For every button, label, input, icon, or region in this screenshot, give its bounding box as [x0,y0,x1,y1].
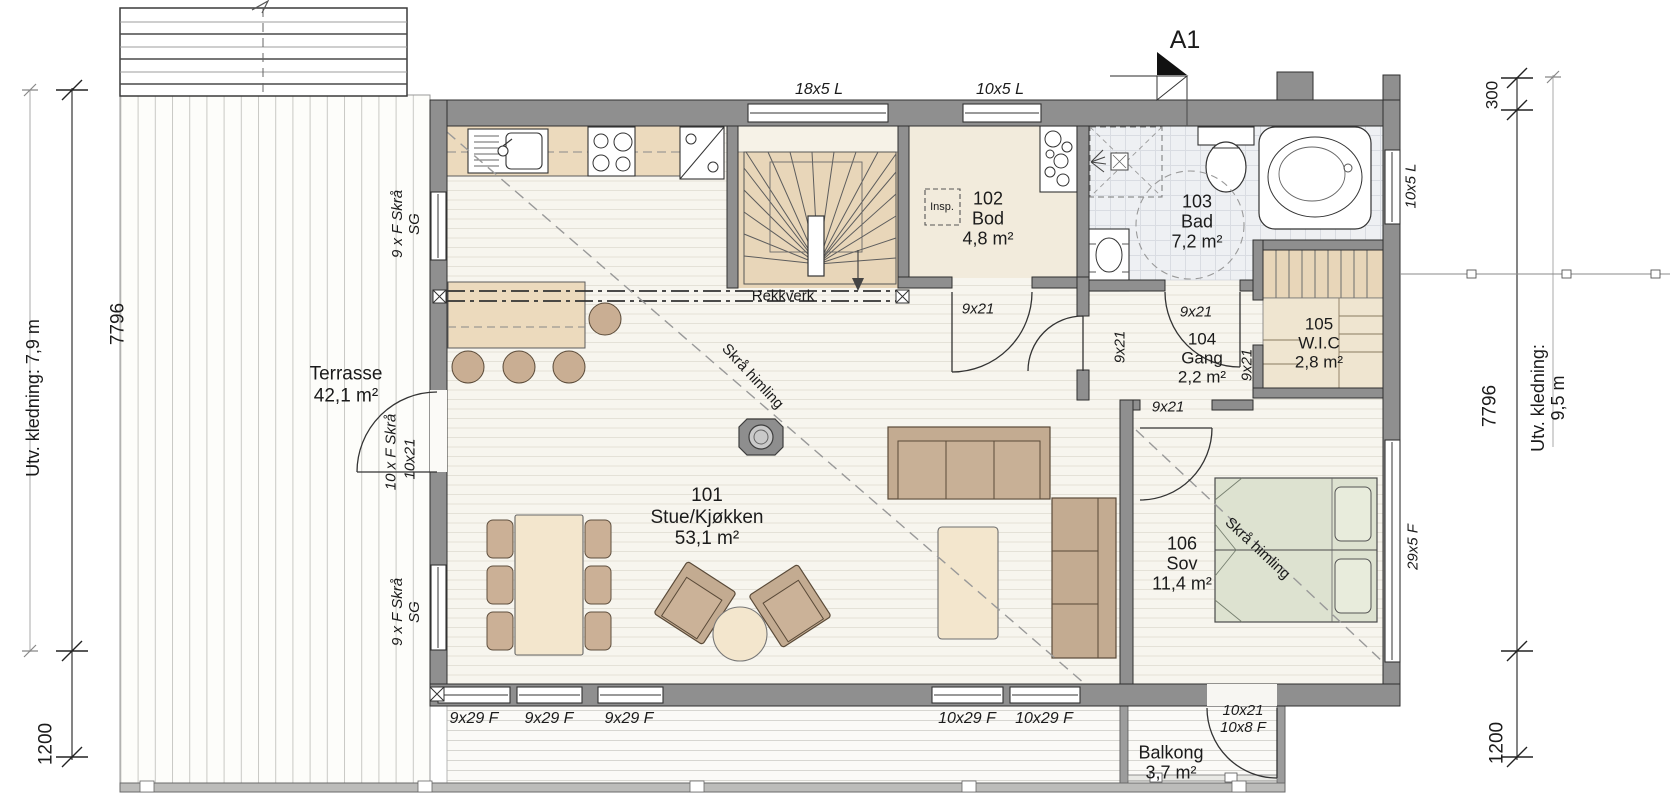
window-label-18x5: 18x5 L [795,81,843,99]
door-label-9x21-bad: 9x21 [1180,305,1213,322]
section-arrow-icon [1157,52,1187,75]
dining-table [515,515,583,655]
kitchen-sink [468,129,548,173]
window-label-9x29-3: 9x29 F [605,710,654,728]
chimney [1277,72,1313,100]
dim-right-low: 1200 [1486,722,1507,764]
wic-stairs-overlap [1263,250,1383,298]
door-label-9x21-bod: 9x21 [962,302,995,319]
floor-plan: A1 101Stue/Kjøkken53,1 m² 102Bod4,8 m² 1… [0,0,1670,800]
room-label-103: 103Bad7,2 m² [1171,172,1222,273]
stairs [738,126,898,291]
dim-left-height: 7796 [107,303,128,345]
door-label-9x21-gang: 9x21 [1113,331,1130,364]
deck-edge-strip [120,781,1285,792]
window-label-9xF-bottom: 9 x F Skrå SG [390,578,424,646]
door-label-9x21-wic: 9x21 [1240,349,1257,382]
kitchen-dishwasher [680,127,724,179]
window-label-9xF-top: 9 x F Skrå SG [390,190,424,258]
terrace-door-size-label: 10x21 [403,439,420,480]
dim-left-cladding: Utv. kledning: 7,9 m [23,319,43,477]
room-label-105: 105W.I.C2,8 m² [1295,295,1343,390]
room-label-104: 104Gang2,2 m² [1178,310,1226,405]
inspection-label: Insp. [930,201,954,213]
bathtub [1259,127,1371,229]
window-label-9x29-2: 9x29 F [525,710,574,728]
section-arrow-outline-icon [1157,76,1187,100]
pouf-table [713,607,767,661]
window-label-9x29-1: 9x29 F [450,710,499,728]
chaise-sofa [1052,498,1116,658]
sofa [888,427,1050,499]
door-label-9x21-sov: 9x21 [1152,400,1185,417]
dim-right-cladding: Utv. kledning: 9,5 m [1528,337,1568,459]
dim-right-offset: 300 [1482,81,1501,109]
window-label-10x5-right: 10x5 L [1404,163,1421,208]
balcony-door-label: 10x21 10x8 F [1220,703,1266,737]
room-label-101: 101Stue/Kjøkken53,1 m² [651,464,764,570]
room-label-106: 106Sov11,4 m² [1152,514,1212,615]
pillow [1335,487,1371,541]
faucet-icon [498,146,508,156]
terrace-door-label: 10 x F Skrå [384,414,401,490]
kitchen-stove [588,127,635,176]
window-label-10x29-1: 10x29 F [938,710,996,728]
railing-label: Rekkverk [752,289,815,306]
wood-stove [739,419,783,455]
terrace-label: Terrasse42,1 m² [310,342,383,427]
window-label-10x29-2: 10x29 F [1015,710,1073,728]
pillow [1335,559,1371,613]
balcony-label: Balkong3,7 m² [1138,723,1203,800]
bed [1215,478,1377,622]
sink-basin-icon [1096,238,1122,272]
section-label: A1 [1170,26,1201,54]
room-label-102: 102Bod4,8 m² [962,169,1013,270]
window-label-29x5: 29x5 F [1406,524,1423,570]
window-label-10x5-top: 10x5 L [976,81,1024,99]
reference-line [1400,270,1670,278]
pergola-overhang [120,1,407,96]
dim-right-height: 7796 [1479,385,1500,427]
dim-left-low: 1200 [35,723,56,765]
bod-water-heater [1040,126,1077,192]
plan-drawing [0,0,1670,800]
terrace-door-gap [430,390,447,472]
